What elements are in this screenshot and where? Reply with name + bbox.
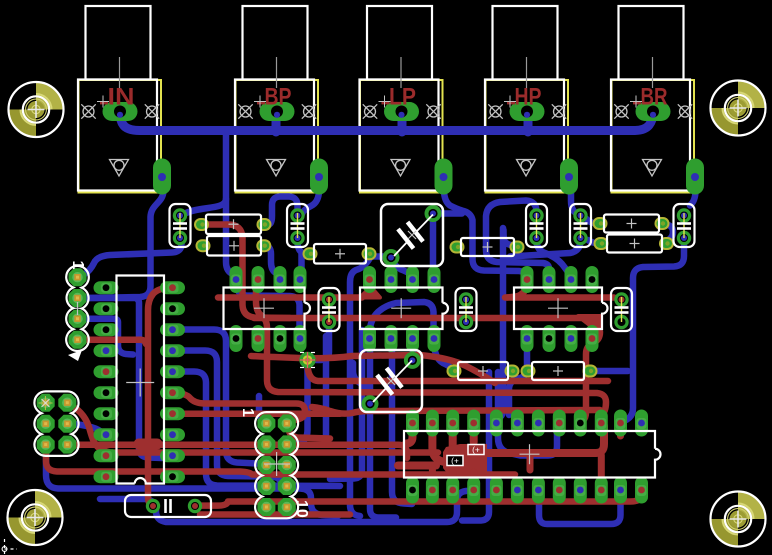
svg-text:10: 10 [293, 500, 310, 518]
svg-text:HP: HP [515, 84, 542, 111]
svg-text:(+: (+ [451, 456, 459, 466]
svg-text:LP: LP [389, 84, 416, 111]
svg-text:IN: IN [108, 84, 135, 111]
svg-text:(+: (+ [472, 445, 480, 455]
svg-text:1: 1 [239, 408, 256, 417]
svg-text:1: 1 [69, 261, 86, 270]
svg-text:BP: BP [265, 84, 292, 111]
svg-text:BR: BR [641, 84, 668, 111]
